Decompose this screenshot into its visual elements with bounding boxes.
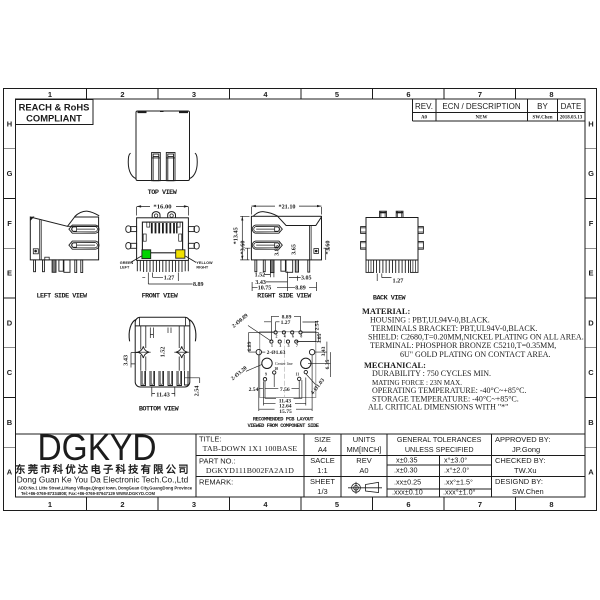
svg-text:3.85: 3.85: [274, 245, 281, 256]
svg-text:D: D: [588, 318, 594, 327]
svg-text:UNLESS SPECIFIED: UNLESS SPECIFIED: [405, 445, 474, 454]
svg-text:DURABILITY : 750 CYCLES MIN.: DURABILITY : 750 CYCLES MIN.: [372, 369, 491, 378]
svg-text:A0: A0: [421, 116, 428, 121]
svg-text:D: D: [7, 318, 13, 327]
svg-text:A0: A0: [359, 466, 368, 475]
svg-text:.xx±0.25: .xx±0.25: [394, 478, 421, 487]
svg-text:2: 2: [275, 335, 277, 339]
svg-text:3.65: 3.65: [290, 244, 297, 255]
svg-text:5: 5: [335, 90, 339, 99]
svg-text:5: 5: [335, 500, 339, 509]
svg-text:7.56: 7.56: [280, 387, 290, 393]
svg-text:3.43: 3.43: [122, 355, 129, 366]
svg-text:.x±0.30: .x±0.30: [394, 466, 418, 475]
svg-text:8: 8: [549, 90, 553, 99]
svg-text:B: B: [588, 418, 594, 427]
svg-text:1.27: 1.27: [164, 276, 175, 282]
svg-text:DESIGND BY:: DESIGND BY:: [495, 477, 543, 486]
svg-text:8: 8: [300, 335, 302, 339]
svg-text:SW.Chen: SW.Chen: [533, 116, 553, 121]
svg-text:3.05: 3.05: [301, 276, 312, 282]
svg-text:6: 6: [406, 90, 410, 99]
svg-text:SACLE: SACLE: [310, 456, 335, 465]
svg-text:7: 7: [478, 90, 482, 99]
svg-text:SW.Chen: SW.Chen: [512, 487, 544, 496]
svg-text:ADD:No.1 Litte Street,LiHang V: ADD:No.1 Litte Street,LiHang Village,Qin…: [18, 486, 193, 491]
svg-text:.xxx±0.10: .xxx±0.10: [392, 488, 423, 497]
svg-text:CHECKED BY:: CHECKED BY:: [495, 456, 545, 465]
svg-text:8.89: 8.89: [295, 286, 306, 292]
svg-text:.x°±2.0°: .x°±2.0°: [444, 466, 469, 475]
svg-text:*21.10: *21.10: [278, 203, 295, 210]
svg-text:11: 11: [296, 373, 300, 377]
svg-text:SIZE: SIZE: [314, 435, 331, 444]
svg-text:PART NO.:: PART NO.:: [199, 457, 236, 466]
svg-text:1.27: 1.27: [281, 320, 291, 326]
svg-text:*13.45: *13.45: [232, 227, 239, 244]
svg-text:1:1: 1:1: [317, 466, 327, 475]
svg-text:BY: BY: [537, 102, 548, 111]
svg-text:1: 1: [48, 500, 52, 509]
svg-text:x±0.35: x±0.35: [396, 456, 418, 465]
svg-text:C: C: [588, 368, 594, 377]
svg-text:OPERATING TEMPERATURE: -40°C~: OPERATING TEMPERATURE: -40°C~+85°C.: [372, 386, 526, 395]
svg-text:G: G: [7, 169, 13, 178]
svg-text:A4: A4: [318, 445, 327, 454]
svg-text:DATE: DATE: [561, 102, 582, 111]
svg-text:TAB-DOWN 1X1 100BASE: TAB-DOWN 1X1 100BASE: [203, 444, 298, 453]
svg-text:1: 1: [48, 90, 52, 99]
svg-text:Center line: Center line: [275, 361, 293, 366]
svg-text:2018.03.13: 2018.03.13: [560, 116, 583, 121]
svg-text:*3.60: *3.60: [324, 241, 331, 255]
svg-text:9: 9: [265, 372, 267, 376]
svg-text:.xxx°±1.0°: .xxx°±1.0°: [443, 488, 476, 497]
svg-text:NEW: NEW: [476, 116, 488, 121]
svg-text:YELLOW: YELLOW: [196, 261, 213, 265]
svg-text:VIEWED FROM COMPONENT SIDE: VIEWED FROM COMPONENT SIDE: [247, 423, 319, 429]
svg-text:G: G: [588, 169, 594, 178]
svg-text:1/3: 1/3: [317, 487, 327, 496]
svg-text:ECN / DESCRIPTION: ECN / DESCRIPTION: [442, 102, 520, 111]
svg-text:8.89: 8.89: [193, 282, 204, 288]
svg-text:5: 5: [288, 344, 290, 348]
svg-text:BOTTOM VIEW: BOTTOM VIEW: [139, 406, 180, 414]
svg-text:REV: REV: [356, 456, 371, 465]
svg-text:6.35: 6.35: [325, 359, 331, 369]
svg-text:2: 2: [120, 500, 124, 509]
svg-text:10: 10: [274, 367, 278, 371]
svg-text:1.52: 1.52: [255, 272, 266, 278]
svg-text:x°±3.0°: x°±3.0°: [444, 456, 467, 465]
svg-text:6: 6: [292, 335, 294, 339]
svg-text:DGKYD111B002FA2A1D: DGKYD111B002FA2A1D: [206, 466, 294, 475]
svg-text:6.89: 6.89: [247, 341, 253, 351]
svg-text:APPROVED BY:: APPROVED BY:: [495, 435, 550, 444]
svg-text:SHIELD: C2680,T=0.20MM,NICKEL: SHIELD: C2680,T=0.20MM,NICKEL PLATING ON…: [368, 332, 584, 341]
svg-text:LEFT SIDE VIEW: LEFT SIDE VIEW: [36, 293, 88, 301]
svg-text:RIGHT SIDE VIEW: RIGHT SIDE VIEW: [257, 293, 312, 301]
svg-text:TITLE:: TITLE:: [199, 435, 222, 444]
svg-text:ALL CRITICAL DIMENSIONS WITH ": ALL CRITICAL DIMENSIONS WITH "*": [368, 403, 508, 412]
svg-text:1.27: 1.27: [393, 277, 404, 284]
svg-text:2.54: 2.54: [314, 320, 320, 330]
svg-text:*16.00: *16.00: [153, 204, 172, 211]
svg-text:REMARK:: REMARK:: [199, 478, 233, 487]
svg-text:3.43: 3.43: [321, 346, 327, 356]
svg-text:2-Ø1.63: 2-Ø1.63: [267, 350, 286, 356]
svg-text:4: 4: [284, 335, 286, 339]
svg-text:3: 3: [192, 500, 196, 509]
svg-text:7: 7: [296, 344, 298, 348]
svg-text:11.43: 11.43: [156, 392, 170, 399]
svg-text:BACK VIEW: BACK VIEW: [373, 295, 407, 303]
svg-text:F: F: [7, 219, 12, 228]
svg-text:Tel:+86-0769-87334808; Fax:+8: Tel:+86-0769-87334808; Fax:+86-0769-8794…: [21, 491, 155, 496]
svg-text:3: 3: [192, 90, 196, 99]
svg-text:1.52: 1.52: [160, 347, 167, 358]
svg-text:*3.60: *3.60: [240, 241, 247, 255]
svg-text:TW.Xu: TW.Xu: [514, 466, 537, 475]
svg-text:10.75: 10.75: [258, 286, 272, 292]
svg-text:E: E: [7, 269, 12, 278]
svg-text:3.05: 3.05: [317, 333, 323, 343]
svg-text:REV.: REV.: [415, 102, 433, 111]
svg-text:2: 2: [120, 90, 124, 99]
svg-text:6U" GOLD PLATING ON CONTACT AR: 6U" GOLD PLATING ON CONTACT AREA.: [400, 350, 550, 359]
svg-text:6: 6: [406, 500, 410, 509]
svg-text:3: 3: [279, 344, 281, 348]
svg-text:SHEET: SHEET: [310, 477, 335, 486]
svg-text:MM[INCH]: MM[INCH]: [347, 445, 382, 454]
svg-text:UNITS: UNITS: [353, 435, 376, 444]
svg-text:GENERAL TOLERANCES: GENERAL TOLERANCES: [397, 435, 482, 444]
svg-text:LEFT: LEFT: [120, 266, 130, 270]
svg-text:F: F: [589, 219, 594, 228]
svg-text:H: H: [588, 119, 593, 128]
svg-text:E: E: [588, 269, 593, 278]
svg-text:FRONT VIEW: FRONT VIEW: [142, 293, 179, 301]
svg-text:1: 1: [271, 344, 273, 348]
svg-text:REACH & RoHS: REACH & RoHS: [19, 102, 90, 113]
svg-text:JP.Gong: JP.Gong: [512, 445, 540, 454]
svg-text:15.75: 15.75: [279, 409, 292, 415]
svg-text:H: H: [7, 119, 12, 128]
svg-text:2.54: 2.54: [249, 387, 259, 393]
svg-text:.xx°±1.5°: .xx°±1.5°: [444, 478, 473, 487]
svg-text:COMPLIANT: COMPLIANT: [26, 112, 82, 123]
svg-text:C: C: [7, 368, 13, 377]
svg-text:DGKYD: DGKYD: [38, 427, 157, 468]
svg-text:A: A: [588, 468, 594, 477]
svg-text:RIGHT: RIGHT: [196, 266, 208, 270]
svg-text:B: B: [7, 418, 13, 427]
svg-text:TERMINAL: PHOSPHOR BRONZE C5: TERMINAL: PHOSPHOR BRONZE C5210,T=0.35MM…: [370, 341, 556, 350]
svg-text:Dong Guan Ke You Da Electronic: Dong Guan Ke You Da Electronic Tech.Co.,…: [17, 475, 189, 485]
svg-text:2.54: 2.54: [194, 386, 201, 397]
svg-text:7: 7: [478, 500, 482, 509]
svg-text:8: 8: [549, 500, 553, 509]
svg-text:A: A: [7, 468, 13, 477]
svg-text:TOP VIEW: TOP VIEW: [148, 189, 178, 197]
svg-text:RECOMMENDED PCB LAYOUT: RECOMMENDED PCB LAYOUT: [253, 416, 314, 422]
